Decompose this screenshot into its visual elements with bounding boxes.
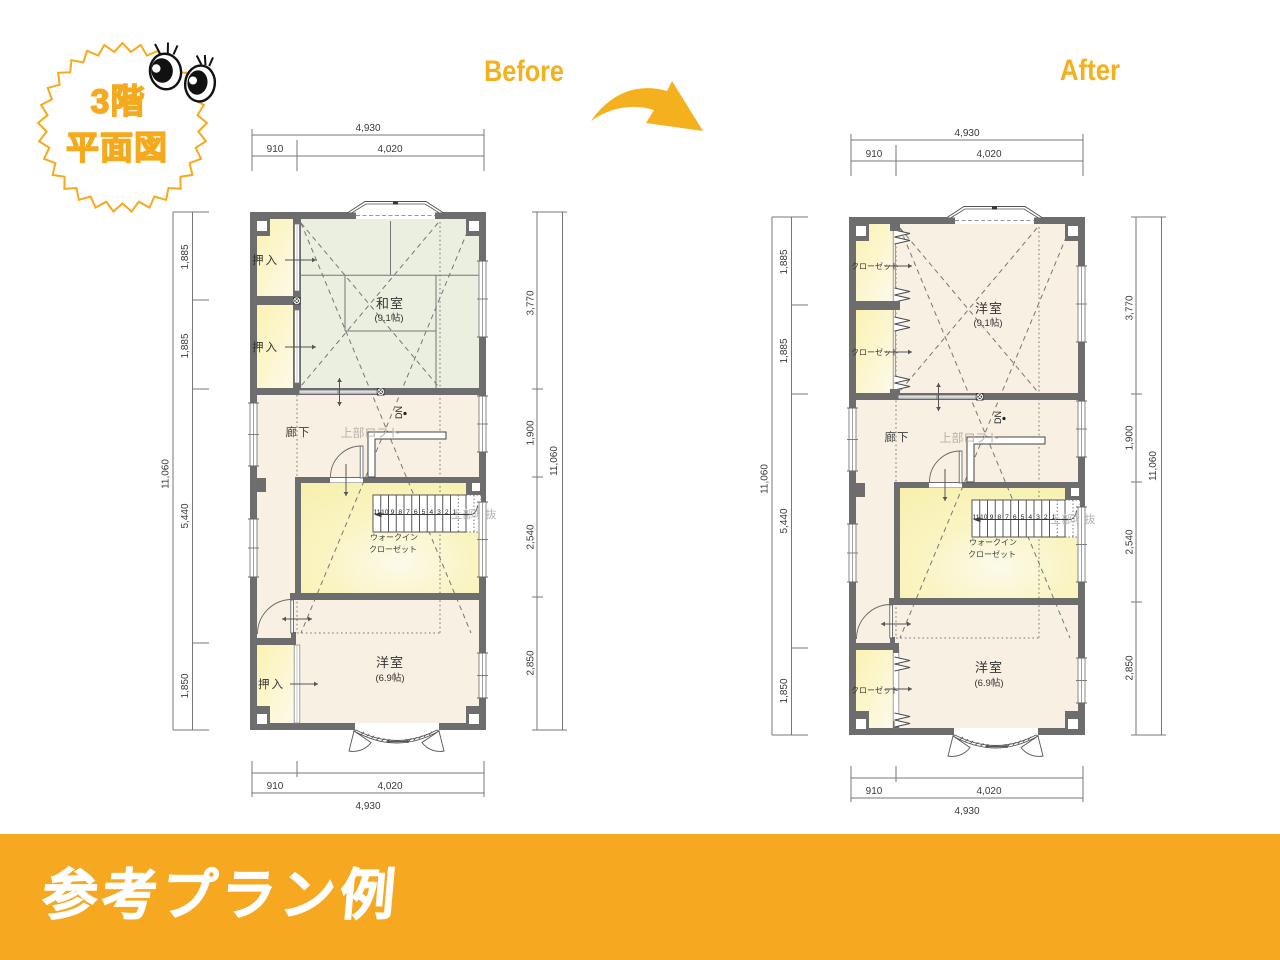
svg-text:1,885: 1,885 <box>180 244 191 269</box>
svg-text:上部吹抜: 上部吹抜 <box>1050 512 1096 526</box>
svg-text:(6.9帖): (6.9帖) <box>375 672 404 684</box>
svg-text:ウォークイン: ウォークイン <box>969 538 1017 547</box>
svg-text:1,900: 1,900 <box>1125 425 1136 450</box>
svg-text:5: 5 <box>422 509 426 516</box>
svg-text:2: 2 <box>1044 514 1048 521</box>
svg-text:2,540: 2,540 <box>1125 529 1136 554</box>
svg-text:4,930: 4,930 <box>954 806 979 817</box>
svg-text:1,885: 1,885 <box>180 333 191 358</box>
svg-text:1,850: 1,850 <box>779 678 790 703</box>
svg-text:6: 6 <box>1013 514 1017 521</box>
svg-text:4,020: 4,020 <box>976 786 1001 797</box>
svg-text:910: 910 <box>866 149 883 160</box>
svg-text:4,020: 4,020 <box>976 149 1001 160</box>
svg-text:10: 10 <box>381 509 389 516</box>
svg-text:910: 910 <box>267 144 284 155</box>
svg-text:11,060: 11,060 <box>161 459 172 489</box>
svg-text:910: 910 <box>866 786 883 797</box>
svg-text:ウォークイン: ウォークイン <box>370 533 418 542</box>
svg-text:4,930: 4,930 <box>355 123 380 134</box>
svg-text:(9.1帖): (9.1帖) <box>374 312 403 324</box>
svg-text:2,540: 2,540 <box>526 524 537 549</box>
svg-text:2: 2 <box>445 509 449 516</box>
svg-text:押入: 押入 <box>252 253 279 267</box>
svg-text:9: 9 <box>990 514 994 521</box>
svg-text:上部ロフト: 上部ロフト <box>939 430 999 445</box>
svg-text:1,885: 1,885 <box>779 338 790 363</box>
svg-text:洋室: 洋室 <box>975 301 1003 316</box>
svg-text:10: 10 <box>980 514 988 521</box>
svg-text:8: 8 <box>398 509 402 516</box>
svg-text:6: 6 <box>414 509 418 516</box>
svg-text:平面図: 平面図 <box>66 129 168 166</box>
svg-text:5,440: 5,440 <box>779 508 790 533</box>
svg-text:1,885: 1,885 <box>779 249 790 274</box>
svg-text:4: 4 <box>1028 514 1032 521</box>
svg-text:3: 3 <box>1036 514 1040 521</box>
svg-text:上部吹抜: 上部吹抜 <box>451 507 497 521</box>
svg-text:1,900: 1,900 <box>526 420 537 445</box>
svg-text:押入: 押入 <box>258 677 285 691</box>
svg-text:クローゼット: クローゼット <box>968 549 1016 559</box>
svg-text:8: 8 <box>997 514 1001 521</box>
svg-text:7: 7 <box>1005 514 1009 521</box>
svg-text:上部ロフト: 上部ロフト <box>340 425 400 440</box>
svg-text:4,020: 4,020 <box>377 781 402 792</box>
svg-text:参考プラン例: 参考プラン例 <box>40 864 402 926</box>
svg-text:和室: 和室 <box>376 296 404 311</box>
svg-text:4,930: 4,930 <box>355 801 380 812</box>
svg-text:Before: Before <box>484 54 564 88</box>
svg-text:2,850: 2,850 <box>526 650 537 675</box>
svg-text:1,850: 1,850 <box>180 673 191 698</box>
svg-text:3,770: 3,770 <box>526 290 537 315</box>
svg-text:5,440: 5,440 <box>180 503 191 528</box>
svg-text:DN: DN <box>394 406 404 419</box>
svg-text:9: 9 <box>391 509 395 516</box>
svg-text:クローゼット: クローゼット <box>369 544 417 554</box>
svg-text:910: 910 <box>267 781 284 792</box>
svg-text:廊下: 廊下 <box>885 430 910 444</box>
svg-text:11,060: 11,060 <box>549 446 560 476</box>
svg-text:押入: 押入 <box>252 340 279 354</box>
svg-text:4,930: 4,930 <box>954 128 979 139</box>
svg-text:After: After <box>1060 53 1120 86</box>
svg-text:DN: DN <box>993 411 1003 424</box>
svg-text:3,770: 3,770 <box>1125 295 1136 320</box>
svg-text:11,060: 11,060 <box>760 464 771 494</box>
svg-text:廊下: 廊下 <box>286 425 311 439</box>
svg-text:洋室: 洋室 <box>975 660 1003 675</box>
svg-text:4: 4 <box>429 509 433 516</box>
svg-text:7: 7 <box>406 509 410 516</box>
svg-text:2,850: 2,850 <box>1125 655 1136 680</box>
svg-text:3: 3 <box>437 509 441 516</box>
svg-text:(9.1帖): (9.1帖) <box>973 317 1002 329</box>
svg-text:3階: 3階 <box>91 83 146 121</box>
svg-text:5: 5 <box>1021 514 1025 521</box>
svg-text:4,020: 4,020 <box>377 144 402 155</box>
svg-text:11,060: 11,060 <box>1148 451 1159 481</box>
svg-text:クローゼット: クローゼット <box>851 685 899 695</box>
svg-text:(6.9帖): (6.9帖) <box>974 677 1003 689</box>
svg-text:洋室: 洋室 <box>376 655 404 670</box>
